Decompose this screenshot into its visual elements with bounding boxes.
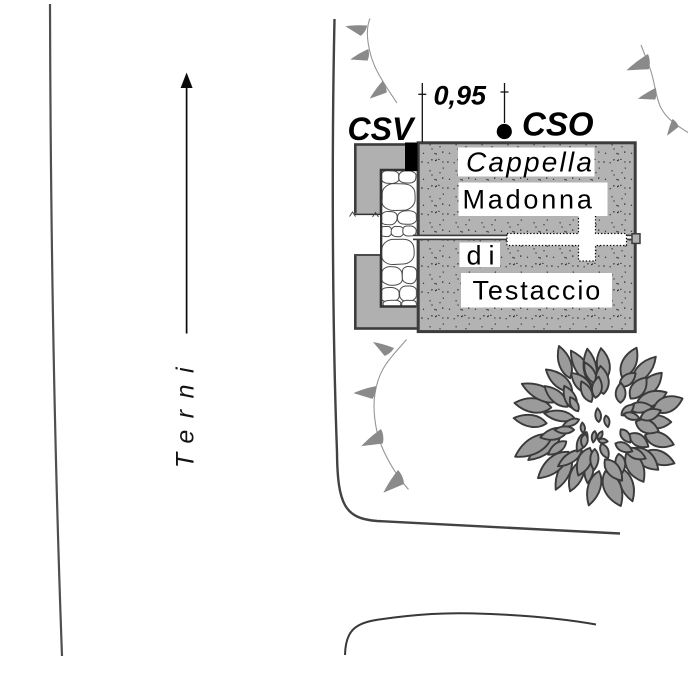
svg-text:di: di	[467, 241, 502, 271]
svg-text:Madonna: Madonna	[463, 185, 595, 215]
svg-text:0,95: 0,95	[434, 80, 488, 110]
svg-text:CSO: CSO	[522, 106, 594, 143]
svg-text:Cappella: Cappella	[466, 147, 594, 178]
svg-text:Testaccio: Testaccio	[473, 276, 603, 306]
svg-text:CSV: CSV	[348, 111, 416, 147]
svg-text:Terni: Terni	[172, 356, 200, 468]
